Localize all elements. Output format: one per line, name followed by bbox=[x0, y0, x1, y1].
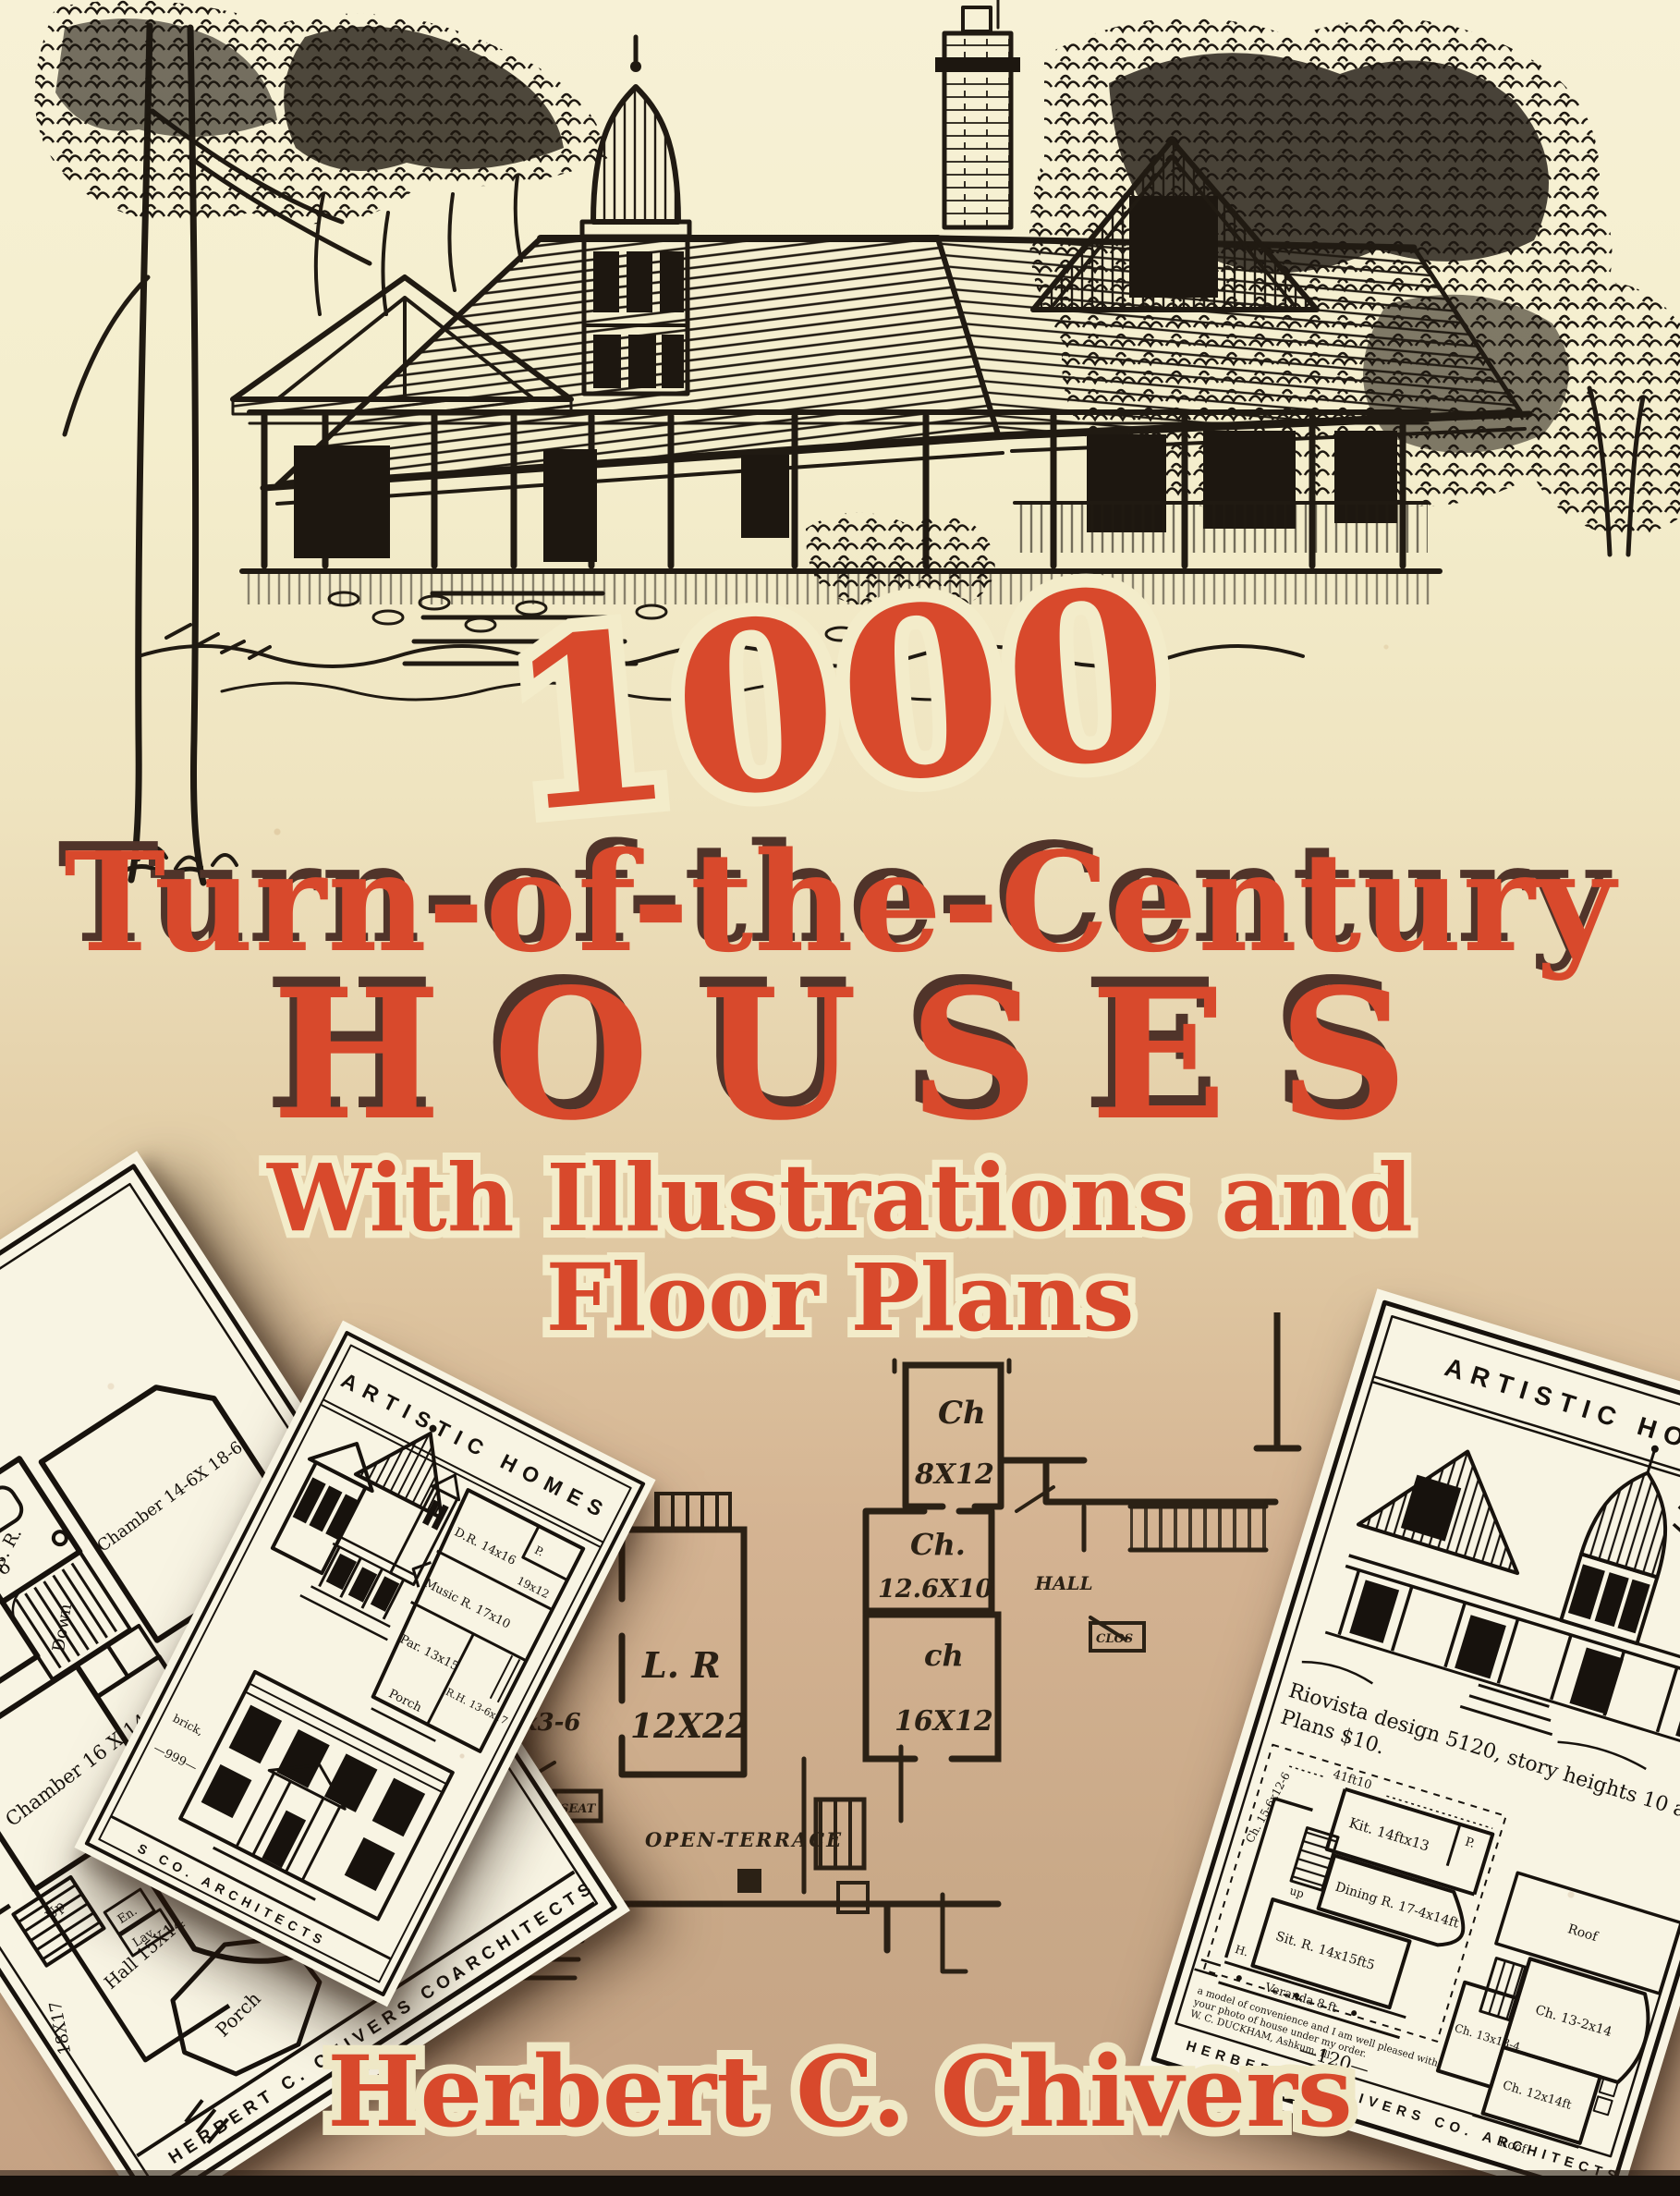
book-cover: Ch 8X12 Ch. 12.6X10 ch 16X12 HALL L. R 1… bbox=[0, 0, 1680, 2196]
room-size-label: 8X12 bbox=[914, 1458, 994, 1491]
room-label: Par. 13x15 bbox=[397, 1632, 461, 1674]
room-label: 19x12 bbox=[515, 1574, 552, 1601]
room-label: L. R bbox=[641, 1644, 721, 1686]
subtitle-line2-wrap: Floor Plans bbox=[0, 1251, 1680, 1344]
title-line2-wrap: HOUSES bbox=[0, 965, 1680, 1144]
room-label: Ch bbox=[938, 1395, 986, 1432]
plan-walls bbox=[517, 1312, 1298, 1978]
subtitle-line1: With Illustrations and bbox=[0, 1152, 1680, 1244]
terrace-label: OPEN-TERRACE bbox=[645, 1828, 843, 1851]
room-label: Ch. 13-2x14 bbox=[1533, 2003, 1613, 2040]
caption-line: Riovista design 5120, story heights 10 a… bbox=[1286, 1679, 1680, 1850]
stair-label: up bbox=[1288, 1884, 1306, 1900]
room-label: H. bbox=[1234, 1943, 1250, 1959]
room-label: P. bbox=[532, 1543, 546, 1559]
room-label: Kit. 14ftx13 bbox=[1347, 1814, 1431, 1854]
page-number: —999— bbox=[151, 1741, 199, 1775]
author-wrap: Herbert C. Chivers bbox=[0, 2043, 1680, 2141]
scan-edge-strip bbox=[0, 2176, 1680, 2196]
room-label: B. R. bbox=[0, 1525, 26, 1572]
room-label: Ch. bbox=[910, 1527, 966, 1562]
dimension-label: 41ft10 bbox=[1332, 1768, 1374, 1793]
hall-label: HALL bbox=[1034, 1572, 1093, 1594]
room-label: Sit. R. 14x15ft5 bbox=[1273, 1929, 1376, 1973]
note-text: brick, bbox=[171, 1712, 206, 1738]
title-line2: HOUSES bbox=[220, 949, 1460, 1160]
closet-label: CLOS bbox=[1096, 1632, 1133, 1646]
room-size-label: 12.6X10 bbox=[878, 1575, 992, 1604]
room-label: ch bbox=[924, 1638, 964, 1673]
room-size-label: 16X12 bbox=[895, 1705, 993, 1738]
subtitle-line2: Floor Plans bbox=[0, 1251, 1680, 1344]
room-label: D.R. 14x16 bbox=[452, 1525, 517, 1568]
subtitle-line1-wrap: With Illustrations and bbox=[0, 1152, 1680, 1244]
author-name: Herbert C. Chivers bbox=[0, 2043, 1680, 2141]
roof-label: Roof bbox=[1566, 1921, 1601, 1945]
room-label: Chamber 14-6X 18-6 bbox=[93, 1438, 246, 1556]
room-label: P. bbox=[1463, 1836, 1476, 1851]
room-size-label: 12X22 bbox=[630, 1707, 749, 1746]
room-label: Music R. 17x10 bbox=[421, 1577, 512, 1632]
